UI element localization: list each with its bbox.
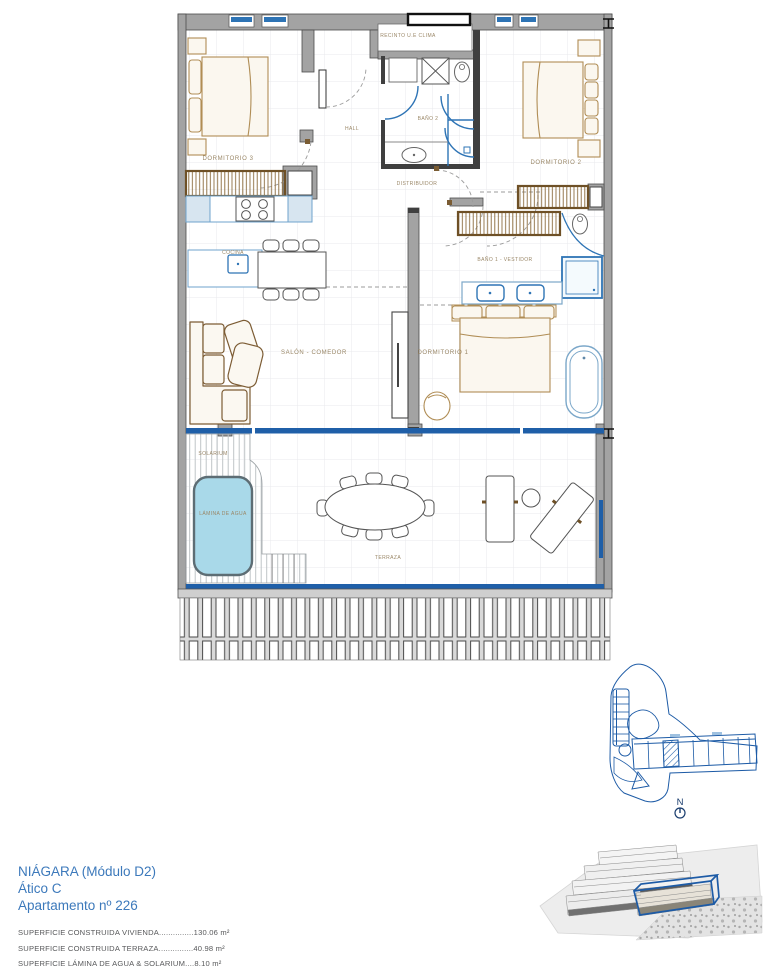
room-label-solarium: SOLARIUM — [198, 451, 227, 457]
glass-wall — [186, 428, 604, 434]
wardrobe-vestidor-a — [518, 186, 588, 208]
title-block: NIÁGARA (Módulo D2) Ático C Apartamento … — [18, 863, 338, 972]
unit-title: Ático C — [18, 880, 338, 897]
entry-door — [319, 70, 326, 108]
media-unit — [392, 312, 408, 418]
railing — [178, 584, 612, 660]
area-line: SUPERFICIE CONSTRUIDA VIVIENDA..........… — [18, 925, 338, 941]
room-label-dormitorio2: DORMITORIO 2 — [530, 160, 581, 166]
room-label-terraza: TERRAZA — [375, 555, 401, 561]
room-label-cocina: COCINA — [222, 250, 244, 256]
area-line: SUPERFICIE CONSTRUIDA TERRAZA...........… — [18, 941, 338, 957]
north-indicator-icon: N — [675, 797, 685, 818]
closet-box-2 — [590, 187, 602, 207]
room-label-dormitorio3: DORMITORIO 3 — [202, 156, 253, 162]
room-label-recinto: RECINTO U.E CLIMA — [380, 33, 436, 39]
room-label-hall: HALL — [345, 126, 359, 132]
closet-box-1 — [288, 171, 312, 195]
area-table: SUPERFICIE CONSTRUIDA VIVIENDA..........… — [18, 925, 338, 972]
north-label: N — [677, 797, 684, 808]
ac-unit — [408, 14, 470, 25]
plan-sheet: RECINTO U.E CLIMA — [0, 0, 764, 972]
wardrobe-vestidor-b — [458, 212, 560, 235]
terrace-side-glass — [599, 500, 603, 558]
project-title: NIÁGARA (Módulo D2) — [18, 863, 338, 880]
room-label-salon: SALÓN - COMEDOR — [281, 349, 347, 356]
bathtub — [566, 346, 602, 418]
site-key-plan — [610, 664, 757, 802]
building-render — [540, 845, 762, 940]
site-highlighted-unit — [663, 740, 679, 767]
room-label-bano2: BAÑO 2 — [418, 115, 439, 122]
room-label-distribuidor: DISTRIBUIDOR — [397, 181, 438, 187]
pool-label: LÁMINA DE AGUA — [199, 510, 247, 517]
room-label-bano1: BAÑO 1 - VESTIDOR — [477, 256, 532, 263]
room-label-dormitorio1: DORMITORIO 1 — [417, 350, 468, 356]
area-line: SUPERFICIE LÁMINA DE AGUA & SOLARIUM....… — [18, 956, 338, 972]
apartment-number: Apartamento nº 226 — [18, 897, 338, 914]
wardrobe-dorm3 — [186, 171, 285, 196]
pool — [194, 477, 252, 575]
floor-plan: RECINTO U.E CLIMA — [178, 14, 614, 660]
floor-plan-svg: RECINTO U.E CLIMA — [0, 0, 764, 972]
